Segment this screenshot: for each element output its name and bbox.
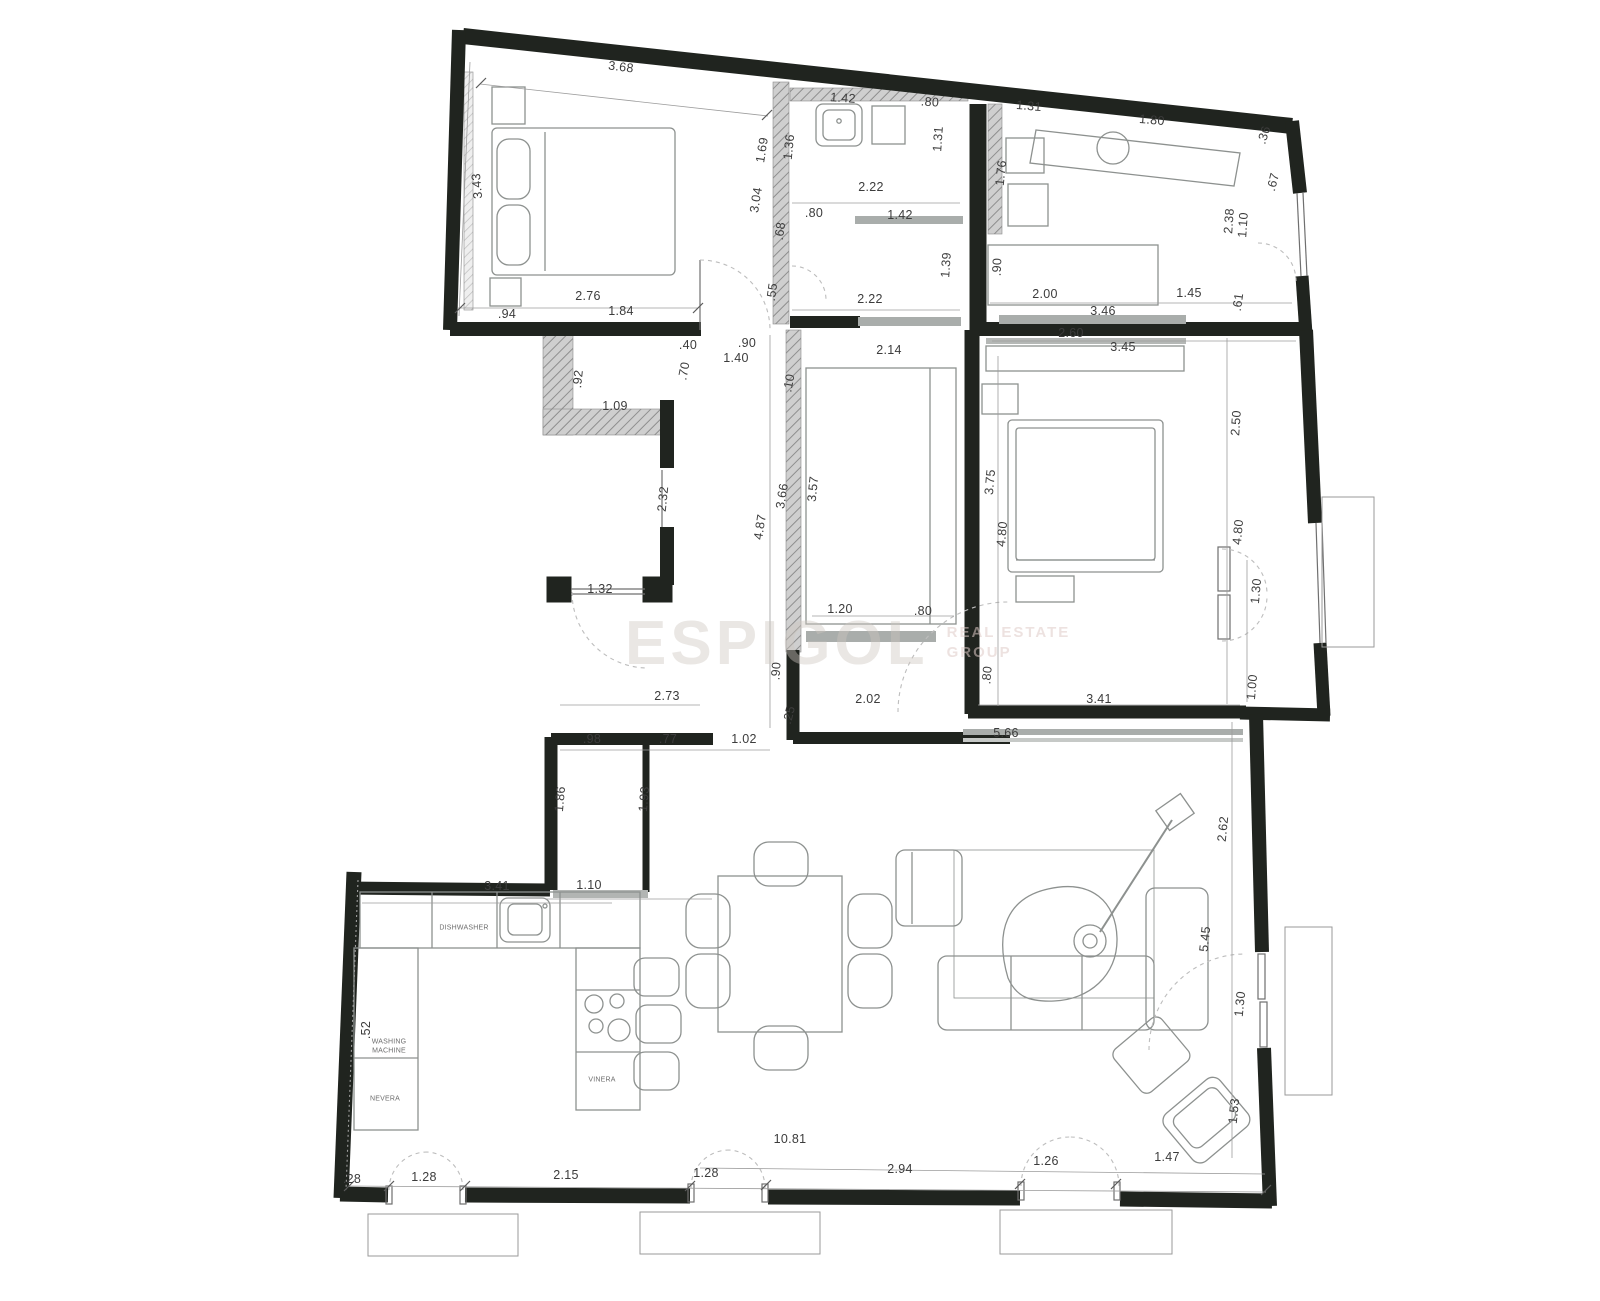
desk-chair <box>1097 132 1129 164</box>
door-arc <box>1222 596 1267 641</box>
wardrobe <box>986 346 1184 371</box>
floor-plan-drawing <box>0 0 1600 1301</box>
kitchen-counter-left <box>354 948 418 1130</box>
dining-chair <box>686 954 730 1008</box>
sofa <box>938 956 1154 1030</box>
bed-1 <box>492 128 675 275</box>
walk-in-closet <box>806 368 956 624</box>
sofa-chaise <box>1146 888 1208 1030</box>
door-arc <box>1149 954 1245 1050</box>
door-arc <box>898 602 1008 712</box>
door-arc <box>1258 243 1296 281</box>
arc-lamp-base <box>1156 794 1194 831</box>
toilet <box>872 106 905 144</box>
dining-chair <box>686 894 730 948</box>
sliding-doors-layer <box>553 216 1243 898</box>
nightstand <box>982 384 1018 414</box>
desk <box>1030 130 1240 186</box>
french-door-arc <box>389 1152 463 1190</box>
arc-lamp <box>1100 820 1172 932</box>
pillow <box>497 139 530 199</box>
shelf <box>1006 138 1044 173</box>
cooktop-burner <box>585 995 603 1013</box>
dining-chair <box>848 954 892 1008</box>
balconies-layer <box>368 497 1374 1256</box>
sideboard <box>988 245 1158 305</box>
coffee-table <box>1003 887 1117 1001</box>
nightstand <box>492 87 525 124</box>
dining-table <box>718 876 842 1032</box>
shelf <box>1008 184 1048 226</box>
rug <box>954 850 1154 998</box>
door-arc <box>1222 549 1267 594</box>
stool <box>636 1005 681 1043</box>
lounge-chair <box>896 850 962 926</box>
stool <box>634 1052 679 1090</box>
furniture-layer <box>354 87 1254 1167</box>
cooktop-burner <box>608 1019 630 1041</box>
door-arc <box>700 260 770 330</box>
windows-layer <box>386 193 1326 1204</box>
floor-plan-page: ESPIGOL REAL ESTATE GROUP 3.683.432.761.… <box>0 0 1600 1301</box>
bed-2 <box>1008 420 1163 572</box>
nightstand <box>490 278 521 306</box>
pillow <box>497 205 530 265</box>
dining-chair <box>848 894 892 948</box>
cooktop-burner <box>589 1019 603 1033</box>
door-arc <box>572 592 648 668</box>
ottoman <box>1110 1014 1193 1097</box>
french-door-arc <box>1021 1137 1119 1186</box>
french-door-arc <box>691 1150 765 1188</box>
bench <box>1016 576 1074 602</box>
cooktop-burner <box>610 994 624 1008</box>
stool <box>634 958 679 996</box>
door-arc <box>792 266 826 300</box>
dining-chair <box>754 842 808 886</box>
